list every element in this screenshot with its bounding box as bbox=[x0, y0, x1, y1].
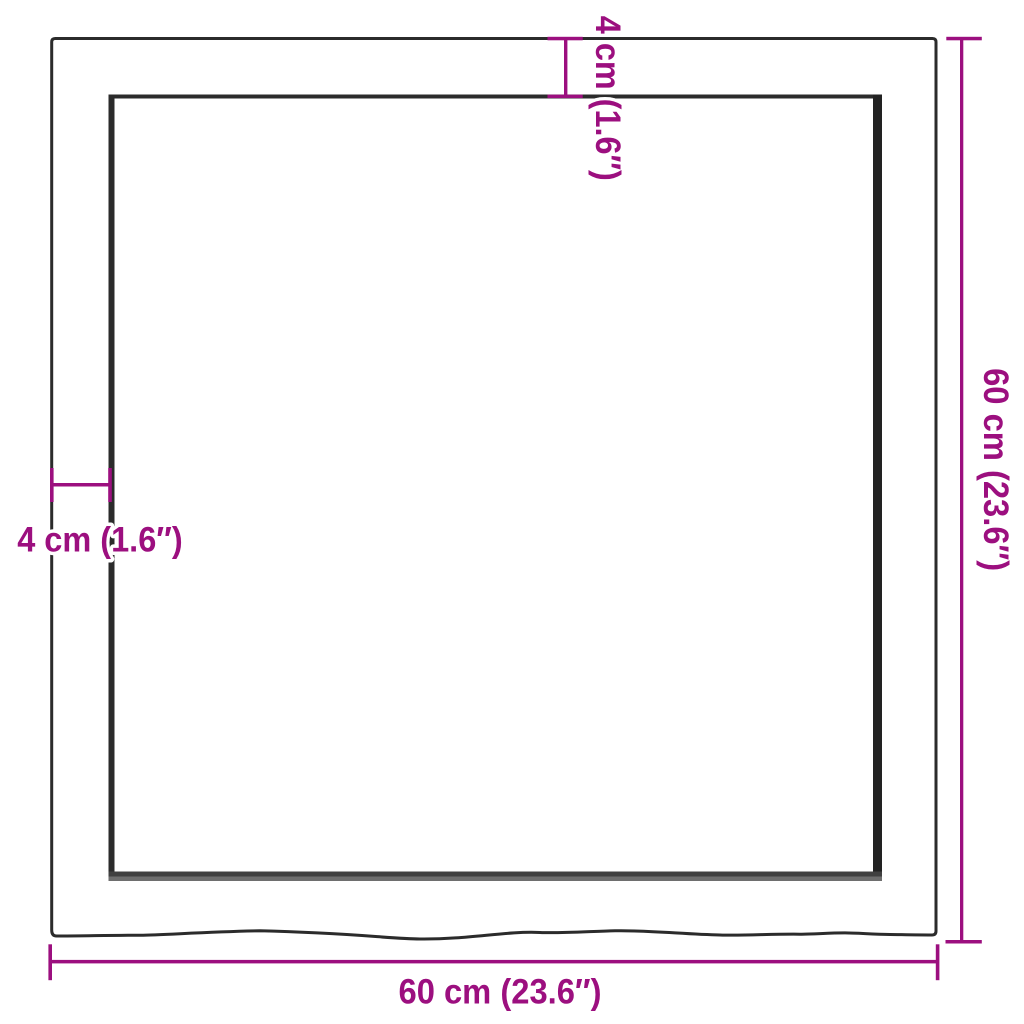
svg-text:4 cm (1.6″): 4 cm (1.6″) bbox=[17, 520, 183, 560]
svg-text:60 cm (23.6″): 60 cm (23.6″) bbox=[399, 972, 602, 1012]
svg-text:4 cm (1.6″): 4 cm (1.6″) bbox=[588, 16, 628, 181]
svg-text:60 cm (23.6″): 60 cm (23.6″) bbox=[976, 368, 1016, 571]
